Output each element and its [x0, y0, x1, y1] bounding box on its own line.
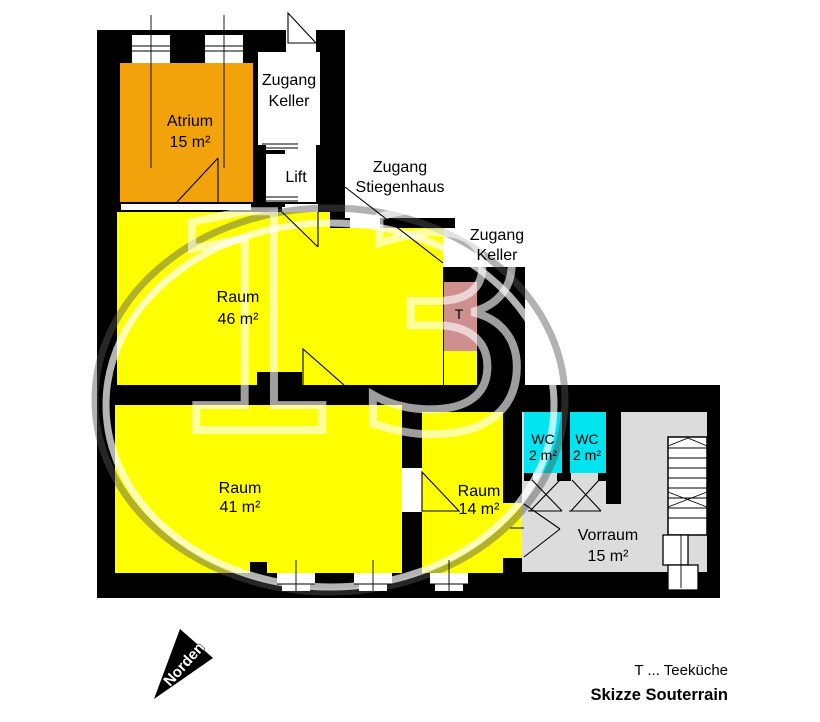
window-pier [250, 562, 267, 573]
zugang-stiegenhaus-label-2: Stiegenhaus [356, 179, 445, 196]
raum41-label: Raum [219, 480, 262, 497]
lift-label: Lift [285, 169, 307, 186]
plan-caption: Skizze Souterrain [590, 686, 728, 704]
vorraum-area: 15 m² [588, 548, 630, 565]
legend: T ... Teeküche Skizze Souterrain [590, 662, 728, 704]
raum46-label: Raum [217, 289, 260, 306]
entrance-door-swing [288, 13, 316, 43]
teekueche-symbol: T [455, 306, 464, 322]
wc1-area: 2 m² [529, 447, 557, 463]
floorplan-drawing: 13 [0, 0, 820, 722]
wc2-area: 2 m² [573, 447, 601, 463]
raum41-area: 41 m² [220, 499, 262, 516]
atrium-area: 15 m² [170, 134, 212, 151]
raum46-area: 46 m² [218, 311, 260, 328]
legend-teekueche: T ... Teeküche [634, 662, 728, 679]
zugang-stiegenhaus-label-1: Zugang [373, 159, 427, 176]
wc2-label: WC [575, 431, 598, 447]
watermark-number: 13 [159, 152, 541, 501]
zugang-keller-top-label-2: Keller [269, 93, 311, 110]
north-arrow: Norden [154, 629, 213, 699]
wc1-label: WC [531, 431, 554, 447]
raum14-label: Raum [458, 483, 501, 500]
atrium-label: Atrium [167, 113, 213, 130]
floorplan-page: 13 [0, 0, 820, 722]
zugang-keller-right-label-1: Zugang [470, 227, 524, 244]
zugang-keller-top-label-1: Zugang [262, 72, 316, 89]
vorraum-label: Vorraum [578, 527, 638, 544]
stair-exit [668, 565, 698, 590]
stair-landing [663, 535, 688, 565]
raum14-area: 14 m² [459, 501, 501, 518]
zugang-keller-right-label-2: Keller [477, 247, 519, 264]
